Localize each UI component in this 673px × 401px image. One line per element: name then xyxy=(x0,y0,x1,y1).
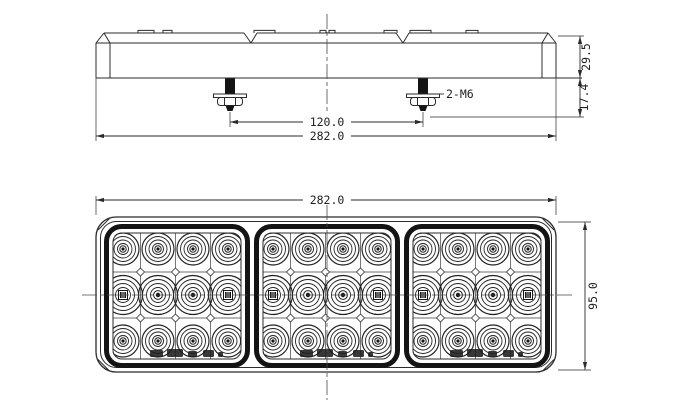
dim-text-overall-width-top: 282.0 xyxy=(310,129,345,143)
engineering-drawing: 120.0 282.0 29.5 17.4 2-M6 xyxy=(0,0,673,401)
dim-text-overall-height-front: 95.0 xyxy=(586,282,600,310)
dim-text-overall-width-front: 282.0 xyxy=(310,193,345,207)
dim-text-stud-length: 17.4 xyxy=(577,84,591,112)
dim-text-body-height: 29.5 xyxy=(579,43,593,71)
stud-callout-text: 2-M6 xyxy=(446,87,474,101)
dim-text-stud-spacing: 120.0 xyxy=(310,115,345,129)
